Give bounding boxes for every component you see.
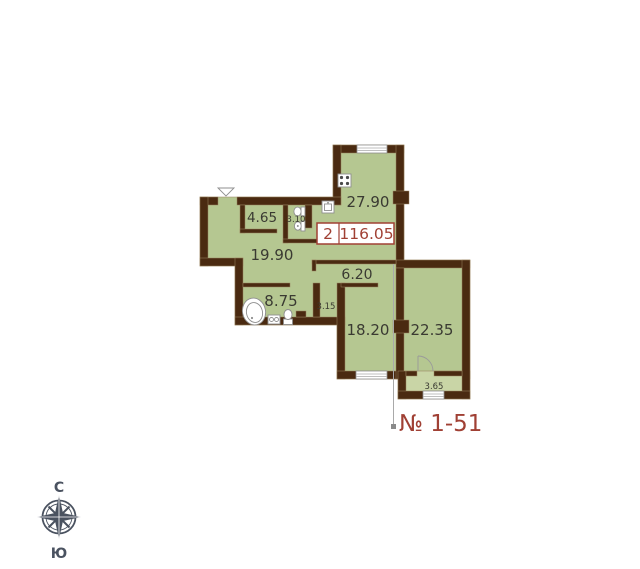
- wall-step-pillar: [296, 311, 306, 317]
- apartment-number: № 1-51: [399, 411, 482, 437]
- wall-corridor-top: [312, 260, 396, 264]
- stove-icon: [338, 174, 351, 187]
- label-living-area: 22.35: [411, 321, 454, 339]
- wall-corridor-bottom: [341, 283, 378, 287]
- wall-bath-left: [235, 258, 243, 325]
- label-bathroom-area: 8.75: [264, 292, 297, 310]
- kitchen-sink-icon: [322, 201, 334, 213]
- bath-toilet-icon: [284, 310, 293, 325]
- bedroom-window: [356, 371, 387, 379]
- wall-kitchen-pillar: [393, 191, 409, 204]
- unit-info-box: 2 116.05: [317, 223, 394, 244]
- wall-wc-right: [305, 205, 312, 228]
- entrance-door-icon: [218, 188, 234, 196]
- wall-living-top: [396, 260, 470, 268]
- wall-balcony-top-1: [406, 371, 417, 376]
- wall-corridor-top-tick: [312, 260, 316, 271]
- label-storage-area: 4.65: [247, 210, 277, 226]
- label-corridor-area: 6.20: [341, 267, 372, 283]
- wall-divider-pillar: [393, 320, 409, 333]
- label-closet-area: 3.15: [317, 302, 336, 312]
- wall-storage-bottom: [240, 229, 277, 233]
- compass-rose-icon: С Ю: [37, 480, 81, 562]
- wall-kitchen-right: [396, 145, 404, 264]
- wall-hall-bath-divider: [243, 283, 290, 287]
- unit-rooms-count: 2: [323, 225, 333, 243]
- floor-plan-page: 27.90 4.65 3.10 19.90 6.20 8.75 3.15 18.…: [0, 0, 640, 569]
- wall-wc-bottom: [283, 239, 318, 243]
- label-kitchen-area: 27.90: [347, 193, 390, 211]
- label-balcony-area: 3.65: [425, 382, 444, 392]
- label-bedroom-area: 18.20: [347, 321, 390, 339]
- wall-balcony-top-2: [434, 371, 462, 376]
- balcony-window: [423, 391, 444, 399]
- unit-total-area: 116.05: [339, 225, 393, 243]
- washer-icon: [268, 315, 280, 324]
- wall-hall-left: [200, 197, 208, 266]
- label-wc-area: 3.10: [287, 215, 306, 225]
- wall-living-right: [462, 260, 470, 399]
- label-hall-area: 19.90: [251, 246, 294, 264]
- compass-north-label: С: [54, 480, 64, 496]
- wall-bedroom-left: [337, 283, 345, 379]
- compass-south-label: Ю: [51, 546, 67, 562]
- kitchen-window: [357, 145, 387, 153]
- floor-plan: 27.90 4.65 3.10 19.90 6.20 8.75 3.15 18.…: [0, 0, 640, 569]
